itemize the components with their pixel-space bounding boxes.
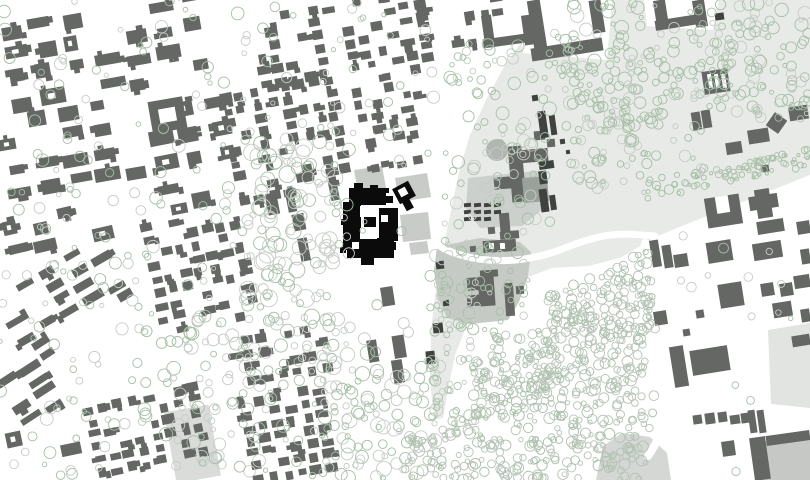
cluster-fabric-mid-south xyxy=(137,199,263,338)
cluster-fabric-site-south xyxy=(358,285,410,387)
map-viewport xyxy=(0,0,810,480)
cluster-fabric-left-mid xyxy=(0,195,115,265)
cluster-fabric-site-north xyxy=(359,111,425,174)
plaza-se xyxy=(409,241,429,255)
plaza-e xyxy=(400,212,431,242)
trees-forest-mid xyxy=(459,331,658,425)
u-building-top-center xyxy=(481,14,535,48)
cluster-fabric-sw-rows xyxy=(0,331,86,432)
ring-courtyard-block xyxy=(147,96,187,134)
cluster-fabric-above-site xyxy=(346,49,431,138)
site-plan-map xyxy=(0,0,810,480)
forest-edge-road xyxy=(640,243,664,456)
cluster-fabric-top-center xyxy=(247,0,436,96)
